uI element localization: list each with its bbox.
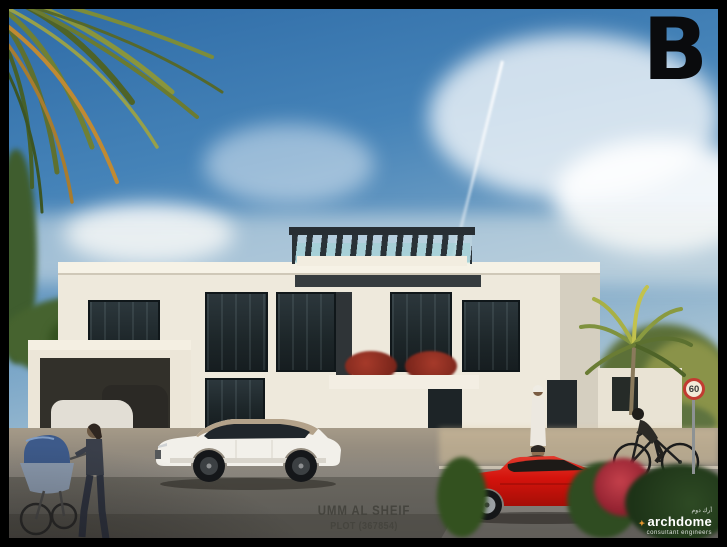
corner-vignette — [9, 429, 369, 538]
sheet-label: B — [642, 11, 708, 90]
palm-fronds-icon — [9, 9, 247, 222]
logo-arabic-text: أرك دوم — [638, 508, 712, 515]
window — [205, 292, 268, 372]
window — [276, 292, 336, 372]
plot-number: PLOT (367854) — [317, 520, 409, 533]
speed-limit-value: 60 — [689, 384, 700, 395]
company-logo: أرك دوم ✦archdome consultant engineers — [638, 508, 712, 537]
roof-fascia — [295, 275, 481, 287]
sign-pole — [692, 399, 695, 474]
window — [462, 300, 520, 372]
pergola-beam — [289, 227, 475, 235]
black-border-frame: 60 B UMM AL SHEIF PLOT (367854) أرك دوم … — [0, 0, 727, 547]
logo-name: ✦archdome — [638, 515, 712, 530]
speed-limit-sign: 60 — [683, 378, 705, 400]
pergola-parapet — [297, 256, 467, 266]
logo-spark-icon: ✦ — [638, 519, 645, 528]
balcony-parapet — [329, 375, 479, 389]
logo-tagline: consultant engineers — [638, 530, 712, 537]
architectural-rendering: 60 B UMM AL SHEIF PLOT (367854) أرك دوم … — [9, 9, 718, 538]
project-name: UMM AL SHEIF — [317, 503, 409, 520]
drawing-caption: UMM AL SHEIF PLOT (367854) — [317, 503, 409, 533]
carport-slab — [28, 340, 191, 350]
hedge — [437, 457, 487, 537]
